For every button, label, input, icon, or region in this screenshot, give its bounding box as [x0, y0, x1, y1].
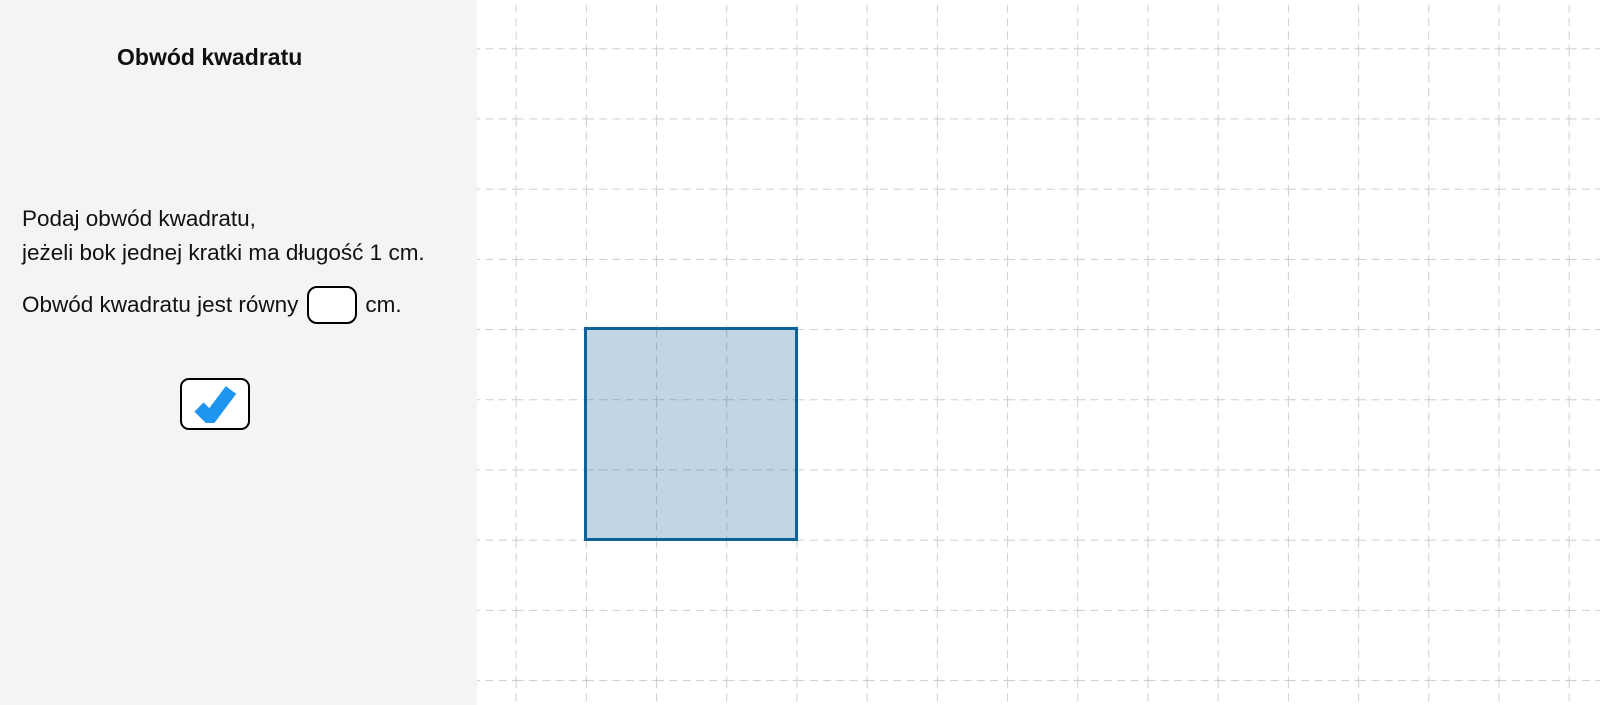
task-instructions: Podaj obwód kwadratu, jeżeli bok jednej …	[22, 202, 425, 269]
task-panel: Obwód kwadratu Podaj obwód kwadratu, jeż…	[0, 0, 477, 705]
answer-suffix-label: cm.	[365, 292, 401, 318]
answer-row: Obwód kwadratu jest równy cm.	[22, 284, 402, 326]
answer-prefix-label: Obwód kwadratu jest równy	[22, 292, 298, 318]
square-shape	[584, 327, 798, 541]
instruction-line-2: jeżeli bok jednej kratki ma długość 1 cm…	[22, 236, 425, 270]
check-icon	[193, 385, 237, 423]
instruction-line-1: Podaj obwód kwadratu,	[22, 202, 425, 236]
applet-window: Obwód kwadratu Podaj obwód kwadratu, jeż…	[0, 0, 1600, 705]
perimeter-input[interactable]	[307, 286, 357, 324]
graphics-view	[477, 0, 1600, 705]
page-title: Obwód kwadratu	[117, 44, 302, 71]
check-answer-button[interactable]	[180, 378, 250, 430]
